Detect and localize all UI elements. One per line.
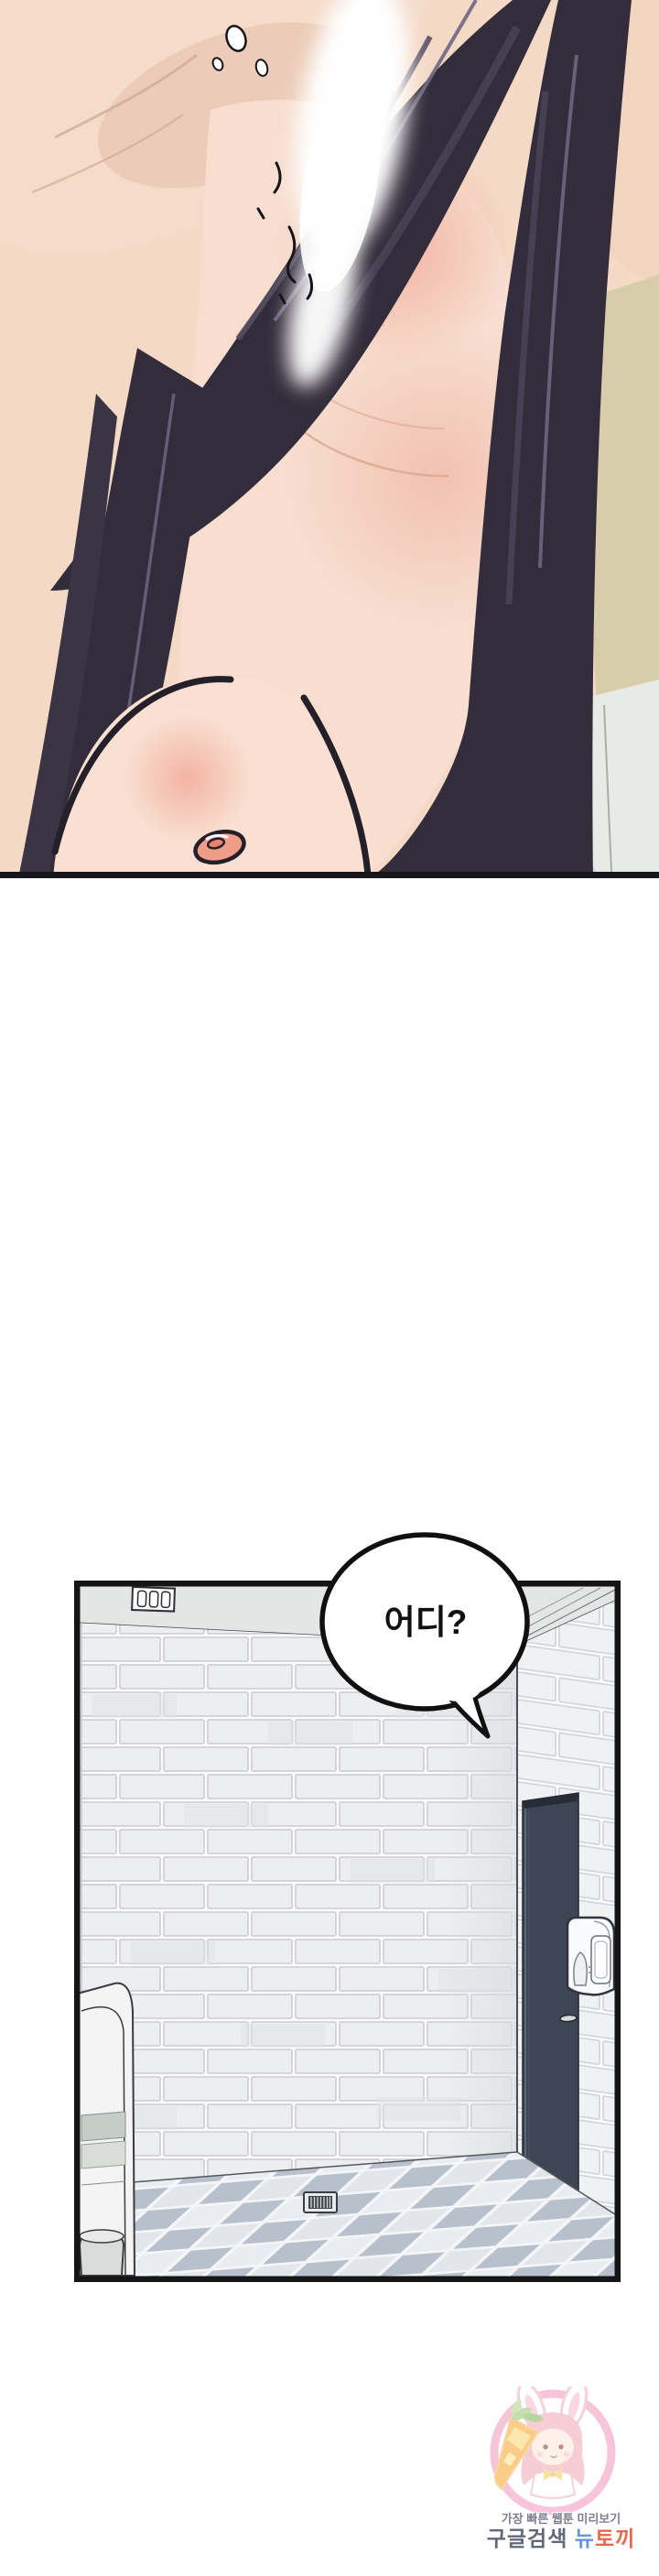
bubble-text: 어디?: [384, 1603, 468, 1641]
artwork-bottom-border: [0, 872, 659, 878]
speech-bubble-tail-mask: [434, 1672, 481, 1701]
floor-drain-icon: [304, 2192, 337, 2212]
comic-page: 어디?: [0, 0, 659, 2576]
mascot-body: [531, 2468, 575, 2498]
artwork-panel: [0, 0, 659, 878]
bathroom-door: [519, 1793, 583, 2212]
watermark-brand-red: 토끼: [595, 2527, 635, 2550]
speech-bubble: 어디?: [311, 1518, 540, 1745]
vent-grate-icon: [132, 1587, 175, 1612]
mascot-face: [532, 2429, 574, 2465]
water-bucket: [80, 2230, 124, 2276]
watermark: 가장 빠른 웹툰 미리보기 구글검색 뉴토끼: [474, 2386, 648, 2560]
watermark-search-text: 구글검색: [487, 2527, 575, 2550]
artwork-illustration: [0, 0, 659, 878]
paper-dispenser: [567, 1918, 614, 1994]
watermark-line2: 구글검색 뉴토끼: [465, 2521, 657, 2552]
watermark-brand-blue: 뉴: [575, 2527, 595, 2550]
